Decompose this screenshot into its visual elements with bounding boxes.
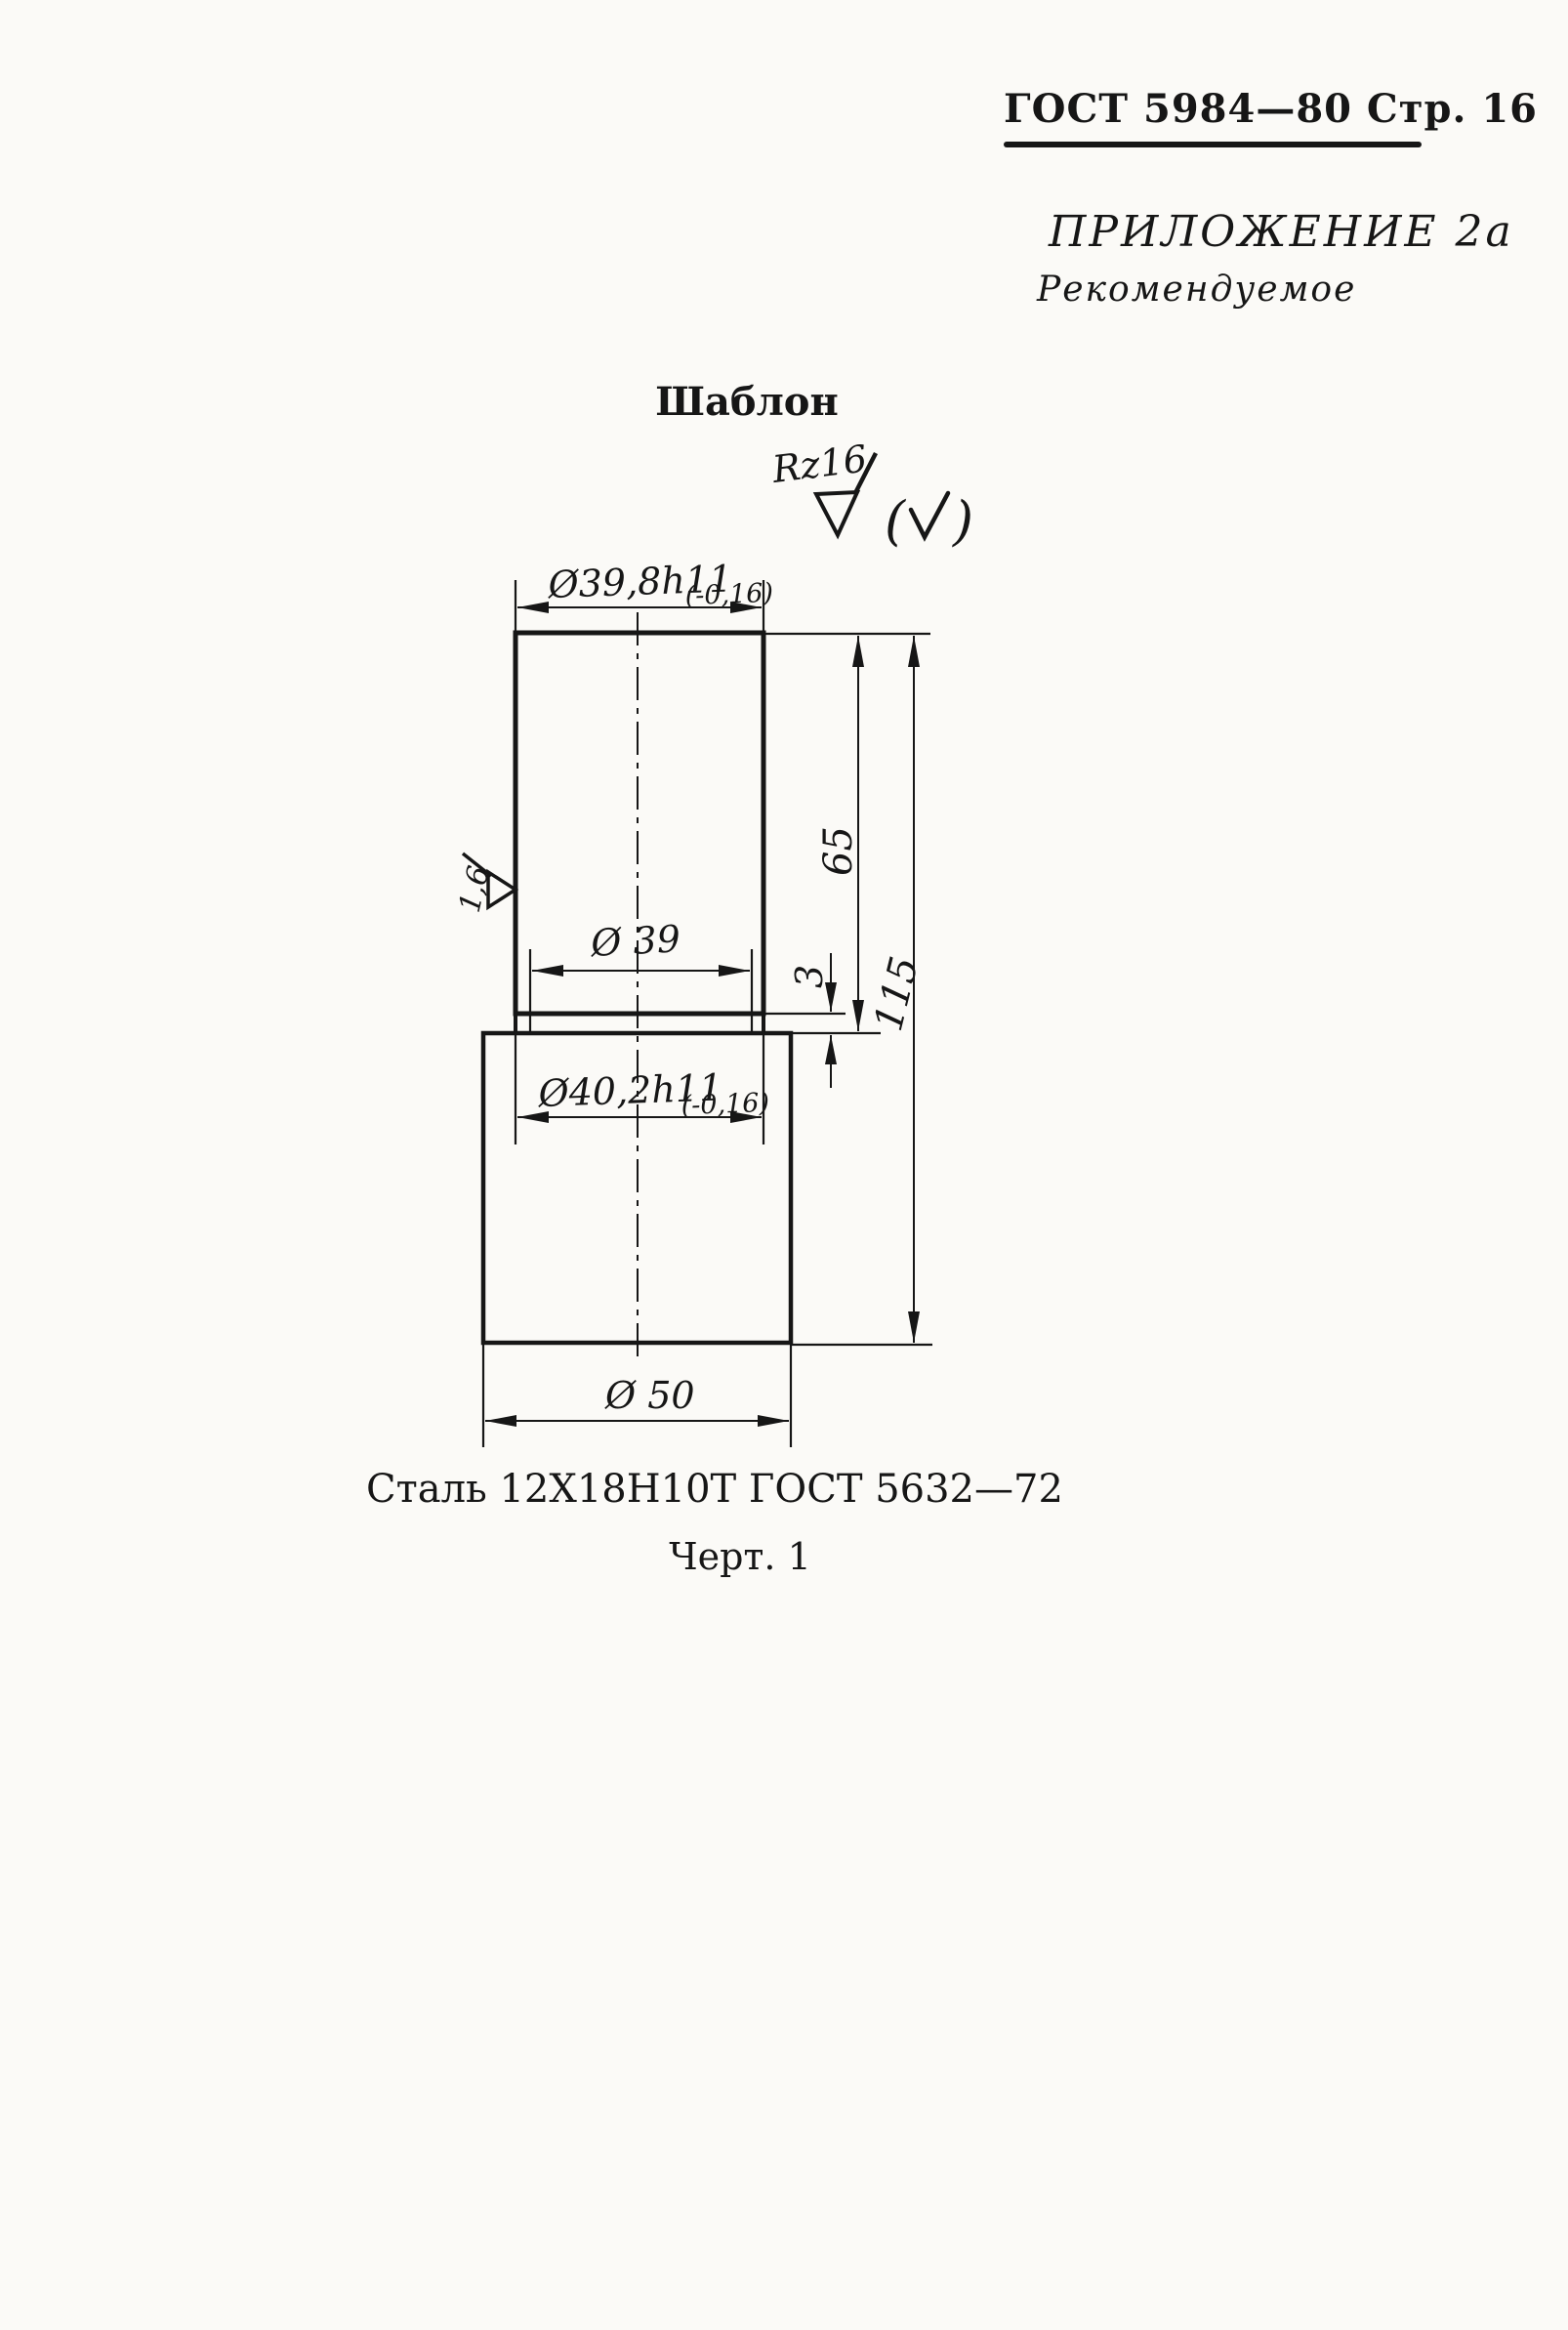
- paren-close: ): [952, 490, 973, 552]
- roughness-check-icon: [816, 492, 857, 535]
- arrow-base-right: [758, 1415, 789, 1427]
- arrow-top-dia-left: [517, 602, 549, 613]
- arrow-115-bottom: [908, 1311, 920, 1343]
- roughness-note-parenthetical: ( ): [885, 490, 973, 552]
- template-drawing: Rz16 ( ) 1,6 Ø39,8h11 (-0,16) Ø 39 Ø40,2…: [0, 0, 1568, 2330]
- dim-upper-height: 65: [816, 826, 861, 876]
- arrow-65-bottom: [852, 1000, 864, 1031]
- document-page: ГОСТ 5984—80 Стр. 16 ПРИЛОЖЕНИЕ 2а Реком…: [0, 0, 1568, 2330]
- arrow-step-up: [825, 1035, 837, 1064]
- dim-step-height: 3: [788, 965, 831, 988]
- arrow-115-top: [908, 636, 920, 667]
- dim-total-height: 115: [866, 952, 928, 1035]
- roughness-top-value: Rz16: [769, 437, 870, 491]
- roughness-mark-top: Rz16: [769, 437, 876, 535]
- dim-base-diameter: Ø 50: [604, 1374, 695, 1417]
- arrow-bore-left: [532, 965, 563, 977]
- arrow-65-top: [852, 636, 864, 667]
- dim-top-tolerance: (-0,16): [684, 578, 773, 611]
- dim-collar-tolerance: (-0,16): [681, 1088, 769, 1121]
- overall-roughness-check-icon: [911, 493, 948, 537]
- dim-bore-diameter: Ø 39: [589, 917, 681, 965]
- arrow-base-left: [485, 1415, 516, 1427]
- roughness-mark-side: 1,6: [453, 853, 516, 916]
- arrow-bore-right: [719, 965, 750, 977]
- paren-open: (: [885, 490, 907, 552]
